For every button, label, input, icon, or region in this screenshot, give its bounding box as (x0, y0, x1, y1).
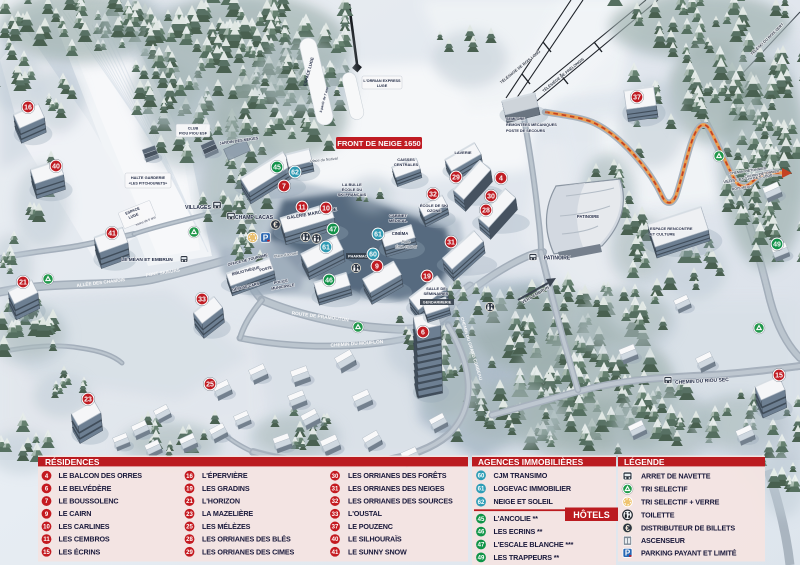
svg-text:11: 11 (43, 537, 50, 543)
svg-text:29: 29 (186, 550, 193, 556)
svg-text:37: 37 (332, 525, 339, 531)
svg-text:19: 19 (186, 486, 193, 492)
svg-text:LES ORRIANES DES CIMES: LES ORRIANES DES CIMES (202, 547, 295, 556)
svg-text:LE BELVÉDÈRE: LE BELVÉDÈRE (59, 484, 112, 493)
svg-text:€: € (625, 524, 630, 533)
svg-text:31: 31 (332, 486, 339, 492)
svg-text:33: 33 (332, 512, 339, 518)
svg-text:ARRET DE NAVETTE: ARRET DE NAVETTE (641, 471, 711, 480)
svg-text:L'HORIZON: L'HORIZON (202, 497, 240, 506)
svg-text:LE BALCON DES ORRES: LE BALCON DES ORRES (59, 471, 143, 480)
svg-text:LE BOUSSOLENC: LE BOUSSOLENC (59, 497, 119, 506)
svg-text:LES ORRIANES DES FORÊTS: LES ORRIANES DES FORÊTS (348, 471, 447, 480)
svg-text:49: 49 (478, 556, 485, 562)
svg-text:LÉGENDE: LÉGENDE (624, 456, 665, 467)
svg-text:23: 23 (186, 512, 193, 518)
svg-text:LES CEMBROS: LES CEMBROS (59, 535, 110, 544)
svg-text:L'OUSTAL: L'OUSTAL (348, 509, 383, 518)
svg-text:LE CAIRN: LE CAIRN (59, 509, 92, 518)
svg-text:LES ÉCRINS: LES ÉCRINS (59, 547, 101, 556)
svg-text:15: 15 (43, 550, 50, 556)
svg-text:L'ANCOLIE **: L'ANCOLIE ** (494, 514, 539, 523)
svg-text:LES ORRIANES DES SOURCES: LES ORRIANES DES SOURCES (348, 497, 453, 506)
svg-text:LE SILHOURAÏS: LE SILHOURAÏS (348, 535, 402, 544)
svg-text:25: 25 (186, 525, 193, 531)
svg-text:47: 47 (478, 543, 485, 549)
svg-text:LE SUNNY SNOW: LE SUNNY SNOW (348, 547, 407, 556)
svg-text:CJM TRANSIMO: CJM TRANSIMO (494, 471, 548, 480)
svg-text:TOILETTE: TOILETTE (641, 510, 675, 519)
svg-text:41: 41 (332, 550, 339, 556)
svg-text:TRI SELECTIF + VERRE: TRI SELECTIF + VERRE (641, 497, 720, 506)
svg-text:HÔTELS: HÔTELS (573, 509, 610, 520)
svg-text:LES ORRIANES DES BLÉS: LES ORRIANES DES BLÉS (202, 535, 291, 544)
svg-text:46: 46 (478, 530, 485, 536)
svg-text:LES CARLINES: LES CARLINES (59, 522, 110, 531)
svg-text:45: 45 (478, 517, 485, 523)
svg-text:DISTRIBUTEUR DE BILLETS: DISTRIBUTEUR DE BILLETS (641, 523, 735, 532)
svg-text:ASCENSEUR: ASCENSEUR (641, 536, 686, 545)
svg-text:30: 30 (332, 474, 339, 480)
svg-text:NEIGE ET SOLEIL: NEIGE ET SOLEIL (494, 497, 554, 506)
svg-text:28: 28 (186, 537, 193, 543)
svg-text:LA MAZELIÈRE: LA MAZELIÈRE (202, 509, 253, 518)
svg-text:61: 61 (478, 487, 485, 493)
svg-text:TRI SELECTIF: TRI SELECTIF (641, 484, 688, 493)
svg-text:LES GRADINS: LES GRADINS (202, 484, 250, 493)
svg-text:L'ESCALE BLANCHE ***: L'ESCALE BLANCHE *** (494, 540, 574, 549)
svg-text:32: 32 (332, 499, 339, 505)
svg-text:LES ECRINS **: LES ECRINS ** (494, 527, 543, 536)
svg-text:21: 21 (186, 499, 193, 505)
svg-text:40: 40 (332, 537, 339, 543)
svg-text:LOGEVAC IMMOBILIER: LOGEVAC IMMOBILIER (494, 484, 572, 493)
svg-text:LES TRAPPEURS **: LES TRAPPEURS ** (494, 553, 560, 562)
svg-text:PARKING PAYANT ET LIMITÉ: PARKING PAYANT ET LIMITÉ (641, 548, 737, 557)
svg-text:LES ORRIANES DES NEIGES: LES ORRIANES DES NEIGES (348, 484, 445, 493)
svg-text:62: 62 (478, 500, 485, 506)
svg-text:10: 10 (43, 525, 50, 531)
svg-text:16: 16 (186, 474, 193, 480)
svg-text:LE POUZENC: LE POUZENC (348, 522, 393, 531)
svg-text:RÉSIDENCES: RÉSIDENCES (45, 456, 100, 467)
svg-text:LES MÉLÈZES: LES MÉLÈZES (202, 522, 251, 531)
svg-text:L'ÉPERVIÈRE: L'ÉPERVIÈRE (202, 471, 248, 480)
svg-text:AGENCES IMMOBILIÈRES: AGENCES IMMOBILIÈRES (478, 456, 584, 467)
svg-text:60: 60 (478, 473, 485, 479)
